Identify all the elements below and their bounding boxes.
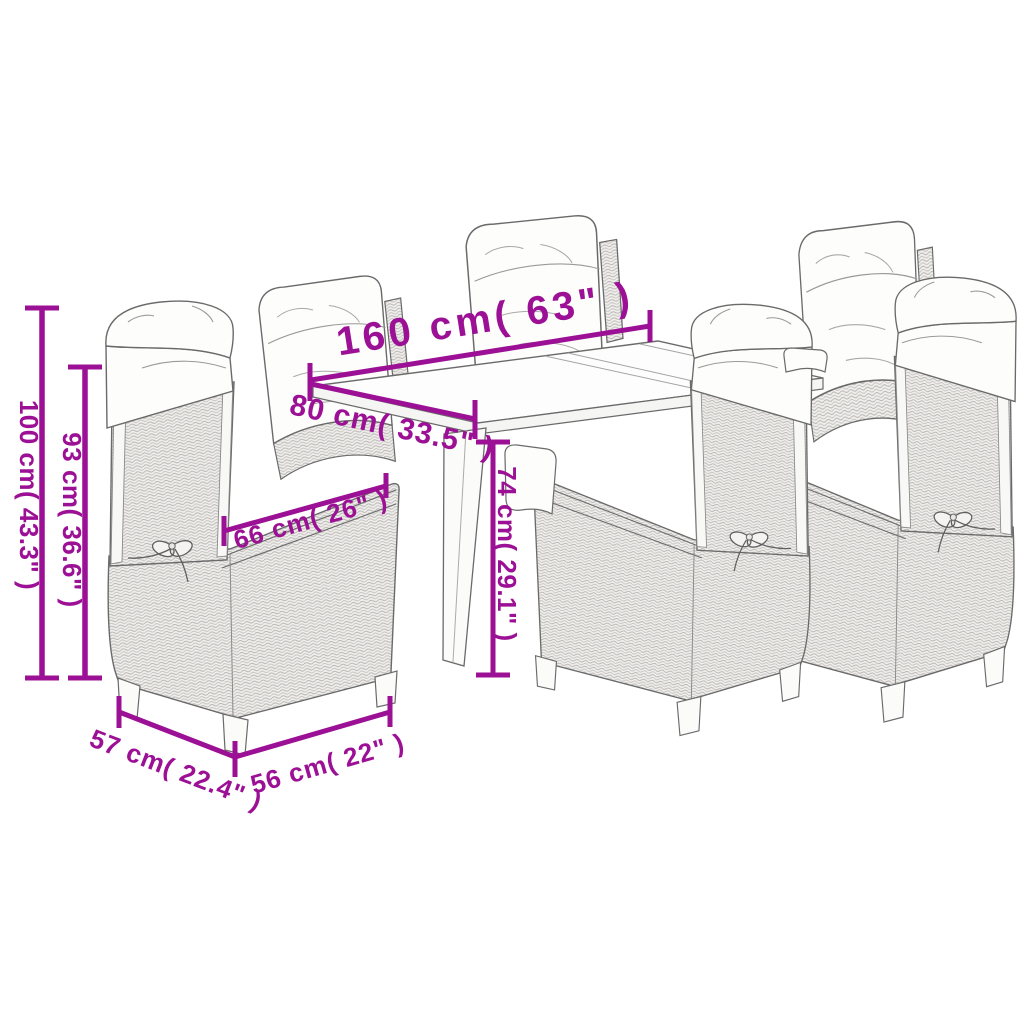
product-diagram: 160 cm( 63" ) 80 cm( 33.5" ) 100 cm( 43.… (0, 0, 1024, 1024)
armrest-cushion-right (784, 348, 827, 372)
dimension-label-chair-width: 56 cm( 22" ) (247, 727, 408, 800)
dimension-label-table-height: 74 cm( 29.1" ) (492, 466, 522, 641)
dimension-label-chair-back-height: 93 cm( 36.6" ) (57, 432, 87, 607)
dimension-label-chair-height: 100 cm( 43.3" ) (14, 400, 44, 590)
dining-set-illustration: 160 cm( 63" ) 80 cm( 33.5" ) 100 cm( 43.… (0, 0, 1024, 1024)
